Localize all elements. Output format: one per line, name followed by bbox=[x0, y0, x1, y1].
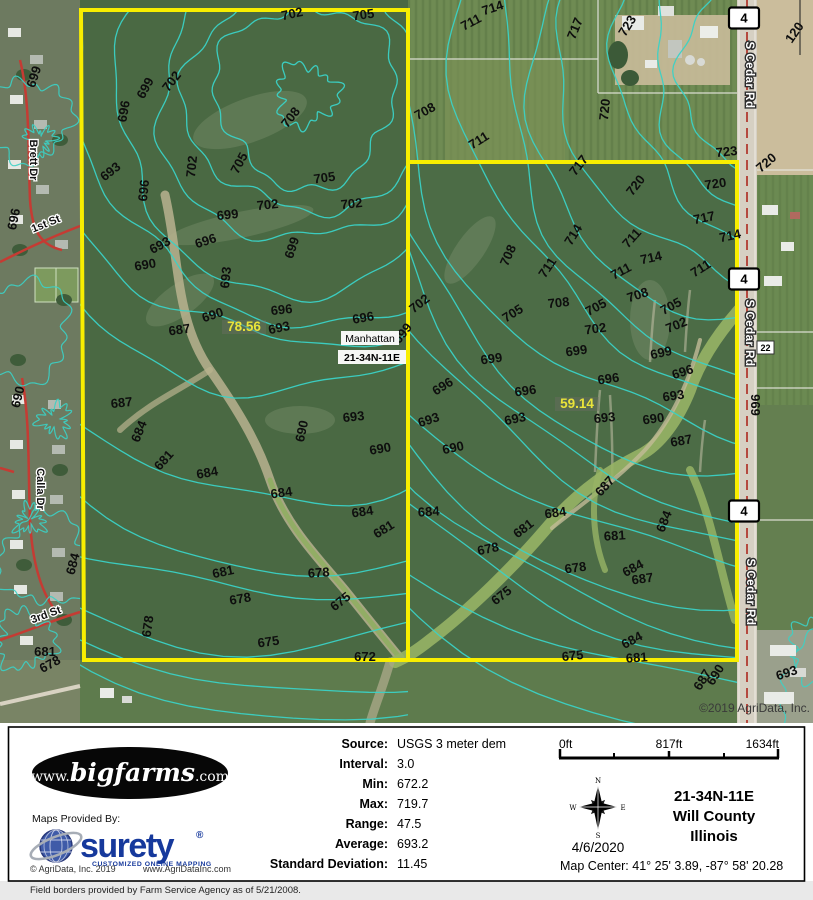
state-text: Illinois bbox=[690, 828, 738, 845]
scale-middle-label: 817ft bbox=[656, 737, 683, 751]
contour-label: 675 bbox=[561, 647, 584, 664]
acreage-value-label: 78.56 bbox=[227, 319, 261, 334]
township-label: 21-34N-11E bbox=[344, 352, 400, 364]
compass-n: N bbox=[595, 777, 601, 785]
contour-label: 693 bbox=[217, 266, 234, 289]
mile-marker-text: 22 bbox=[760, 343, 770, 353]
bigfarms-name: bigfarms bbox=[70, 758, 195, 787]
place-name-label: Manhattan bbox=[345, 333, 395, 345]
stat-label: Source: bbox=[341, 737, 388, 751]
stat-value: 3.0 bbox=[397, 757, 414, 771]
map-date: 4/6/2020 bbox=[572, 840, 625, 855]
route-shield-number: 4 bbox=[740, 272, 748, 287]
scale-end-label: 1634ft bbox=[746, 737, 780, 751]
contour-label: 708 bbox=[547, 294, 570, 311]
compass-s: S bbox=[596, 832, 601, 840]
stat-label: Max: bbox=[360, 797, 388, 811]
compass-e: E bbox=[620, 804, 625, 812]
stat-label: Min: bbox=[362, 777, 388, 791]
contour-label: 681 bbox=[625, 649, 648, 665]
contour-label: 705 bbox=[352, 6, 376, 24]
road-name-label: S Cedar Rd bbox=[743, 42, 755, 109]
contour-label: 699 bbox=[216, 206, 239, 223]
contour-label: 696 bbox=[597, 370, 621, 388]
contour-label: 702 bbox=[183, 155, 200, 178]
stat-label: Range: bbox=[346, 817, 388, 831]
surety-name: surety bbox=[80, 827, 175, 865]
contour-label: 696 bbox=[270, 301, 293, 318]
contour-label: 702 bbox=[340, 195, 363, 212]
street-label: Calla Dr bbox=[34, 468, 46, 510]
bigfarms-prefix: www. bbox=[31, 769, 70, 785]
contour-label: 681 bbox=[603, 527, 626, 543]
contour-label: 690 bbox=[642, 410, 666, 428]
contour-label: 693 bbox=[342, 408, 365, 425]
contour-label: 702 bbox=[584, 320, 608, 338]
mile-marker-22: 22 bbox=[757, 341, 774, 354]
map-footer: www.bigfarms.com Maps Provided By: suret… bbox=[0, 723, 813, 900]
contour-label: 699 bbox=[480, 350, 504, 368]
acreage-value-label: 59.14 bbox=[560, 396, 594, 411]
contour-label: 687 bbox=[631, 570, 655, 588]
road-name-label: S Cedar Rd bbox=[744, 559, 756, 626]
contour-label: 684 bbox=[270, 484, 294, 502]
contour-label: 678 bbox=[139, 615, 157, 639]
road-name-label: S Cedar Rd bbox=[743, 300, 755, 367]
county-text: Will County bbox=[673, 808, 756, 825]
contour-label: 720 bbox=[704, 175, 728, 193]
provided-by-label: Maps Provided By: bbox=[32, 813, 120, 825]
stat-label: Average: bbox=[335, 837, 388, 851]
contour-label: 675 bbox=[257, 633, 281, 651]
contour-label: 678 bbox=[564, 559, 588, 577]
stat-value: 47.5 bbox=[397, 817, 421, 831]
compass-w: W bbox=[569, 804, 577, 812]
bigfarms-suffix: .com bbox=[195, 769, 229, 785]
route-shield-number: 4 bbox=[740, 504, 748, 519]
stat-value: 672.2 bbox=[397, 777, 428, 791]
stat-value: 693.2 bbox=[397, 837, 428, 851]
contour-label: 687 bbox=[110, 394, 133, 411]
agridata-copyright: © AgriData, Inc. 2019 bbox=[30, 864, 116, 874]
field-borders-disclaimer: Field borders provided by Farm Service A… bbox=[30, 885, 301, 896]
aerial-contour-map: 6996966906846816787027056997026967086937… bbox=[0, 0, 813, 723]
stat-label: Standard Deviation: bbox=[270, 857, 388, 871]
stat-label: Interval: bbox=[339, 757, 388, 771]
agridata-url: www.AgriDataInc.com bbox=[142, 864, 231, 874]
map-attribution: ©2019 AgriData, Inc. bbox=[699, 701, 810, 715]
contour-label: 678 bbox=[307, 564, 330, 580]
map-report-page: 6996966906846816787027056997026967086937… bbox=[0, 0, 813, 900]
contour-label: 693 bbox=[662, 387, 686, 405]
contour-label: 684 bbox=[417, 503, 440, 520]
contour-label: 693 bbox=[593, 409, 616, 426]
contour-label: 720 bbox=[596, 98, 613, 121]
stat-value: 11.45 bbox=[397, 857, 427, 871]
stat-value: 719.7 bbox=[397, 797, 428, 811]
contour-label: 702 bbox=[256, 196, 279, 213]
contour-label: 684 bbox=[544, 504, 568, 522]
street-label: Brett Dr bbox=[27, 140, 39, 182]
stat-value: USGS 3 meter dem bbox=[397, 737, 506, 751]
surety-registered-mark: ® bbox=[196, 830, 204, 841]
contour-label: 969 bbox=[748, 394, 763, 416]
contour-label: 687 bbox=[168, 321, 192, 339]
route-shield-number: 4 bbox=[740, 11, 748, 26]
contour-label: 723 bbox=[715, 143, 738, 160]
map-center-coordinates: Map Center: 41° 25' 3.89, -87° 58' 20.28 bbox=[560, 859, 783, 873]
township-text: 21-34N-11E bbox=[674, 788, 754, 805]
contour-label: 699 bbox=[565, 342, 589, 360]
contour-label: 684 bbox=[351, 503, 375, 521]
contour-label: 705 bbox=[313, 169, 337, 187]
contour-label: 696 bbox=[514, 382, 538, 400]
contour-label: 696 bbox=[135, 179, 152, 202]
scale-start-label: 0ft bbox=[559, 737, 573, 751]
contour-label: 672 bbox=[354, 649, 376, 664]
bigfarms-logo: www.bigfarms.com bbox=[31, 747, 229, 799]
